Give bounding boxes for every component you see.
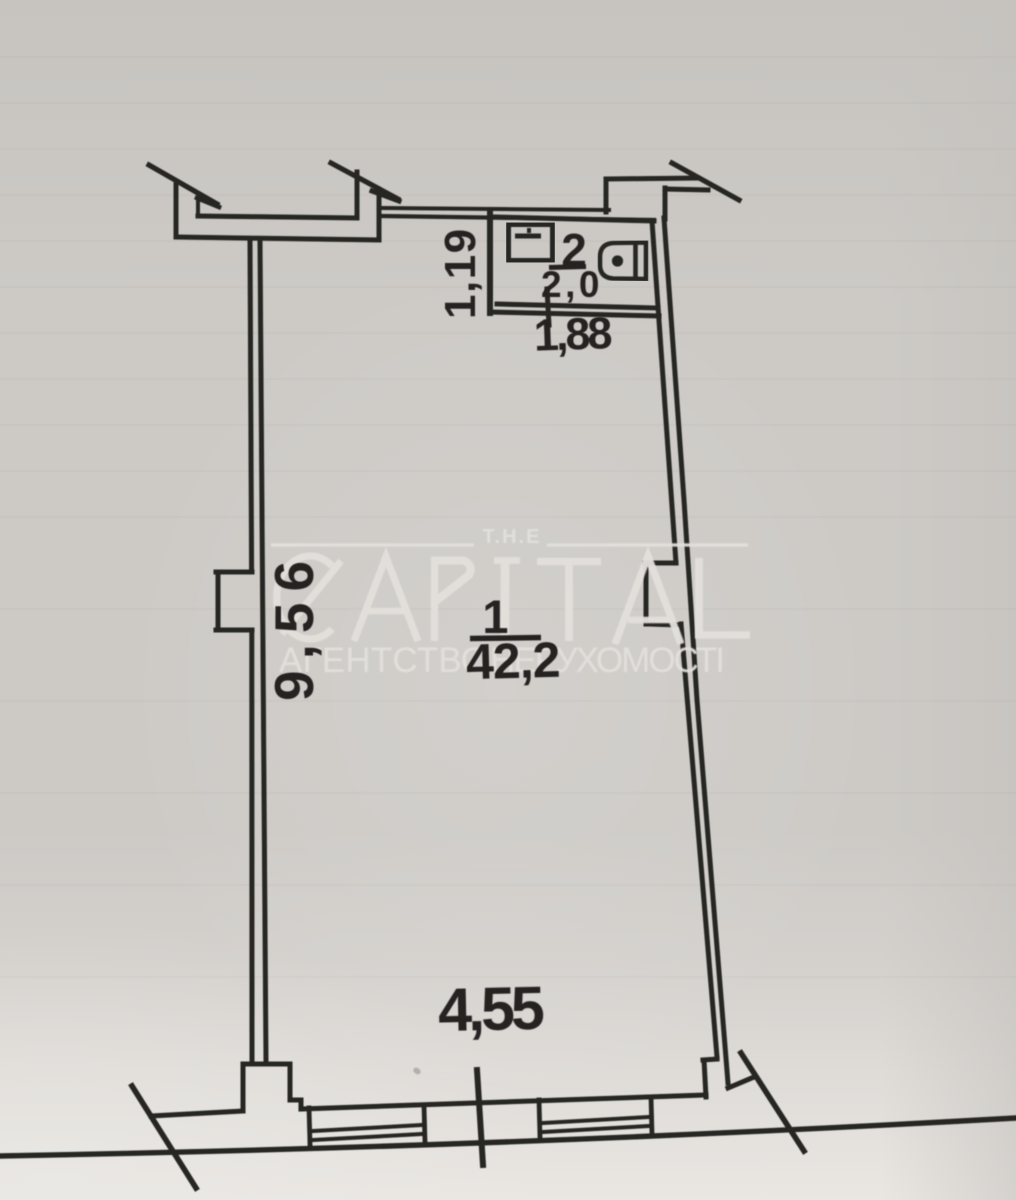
svg-text:2,0: 2,0 — [541, 264, 603, 305]
svg-text:4,55: 4,55 — [437, 974, 544, 1044]
svg-text:9,56: 9,56 — [263, 550, 325, 701]
svg-text:1,19: 1,19 — [436, 227, 485, 319]
svg-text:42,2: 42,2 — [465, 632, 560, 690]
svg-text:T.H.E: T.H.E — [483, 526, 542, 548]
svg-text:1,88: 1,88 — [533, 307, 612, 361]
